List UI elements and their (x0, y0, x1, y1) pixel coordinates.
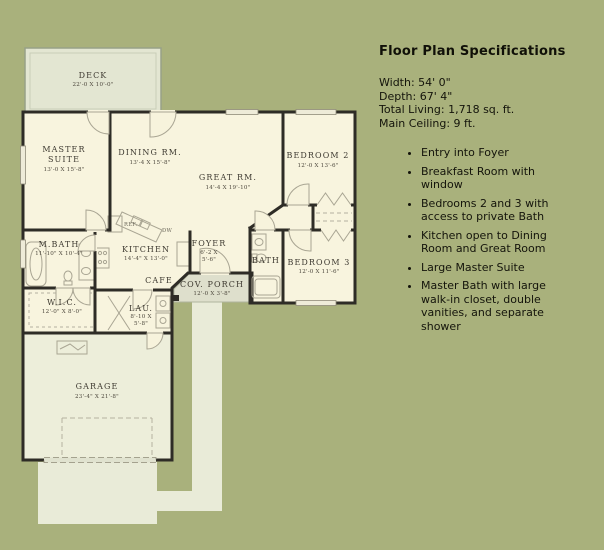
porch-label: COV. PORCH (180, 280, 244, 289)
feature-item: Entry into Foyer (421, 146, 563, 160)
mbath-label: M.BATH (39, 240, 80, 249)
spec-main-ceiling: Main Ceiling: 9 ft. (379, 117, 595, 131)
dining-label: DINING RM. (118, 148, 181, 157)
refrigerator-label: REF. (124, 222, 137, 228)
spec-width: Width: 54' 0" (379, 76, 595, 90)
feature-item: Kitchen open to Dining Room and Great Ro… (421, 229, 563, 256)
dishwasher-label: DW (162, 228, 172, 234)
dining-dims: 13'-4 X 15'-8" (129, 160, 170, 166)
window-greatroom (226, 110, 258, 115)
deck-outline (25, 48, 161, 114)
garage-label: GARAGE (76, 382, 119, 391)
wic-dims: 12'-0" X 8'-0" (42, 309, 82, 315)
spec-total-living: Total Living: 1,718 sq. ft. (379, 103, 595, 117)
bedroom3-dims: 12'-0 X 11'-6" (298, 269, 339, 275)
spec-depth: Depth: 67' 4" (379, 90, 595, 104)
feature-item: Breakfast Room with window (421, 165, 563, 192)
bedroom2-dims: 12'-0 X 13'-6" (297, 163, 338, 169)
master-label-2: SUITE (48, 155, 80, 164)
garage-door (44, 458, 156, 463)
laundry-dims-2: 5'-8" (134, 321, 148, 327)
feature-list: Entry into Foyer Breakfast Room with win… (379, 146, 595, 333)
deck-area (25, 48, 161, 114)
walkway-connector (155, 491, 222, 511)
wic-label: W.I.C. (47, 298, 77, 307)
specifications-panel: Floor Plan Specifications Width: 54' 0" … (379, 44, 595, 338)
feature-item: Large Master Suite (421, 261, 563, 275)
kitchen-dims: 14'-4" X 13'-0" (124, 256, 168, 262)
window-master (21, 146, 26, 184)
foyer-dims-1: 6'-2 X (200, 250, 218, 256)
window-mbath (21, 240, 26, 268)
deck-dims: 22'-0 X 10'-0" (72, 82, 113, 88)
bedroom2-label: BEDROOM 2 (287, 151, 350, 160)
specifications-title: Floor Plan Specifications (379, 44, 595, 59)
window-bedroom3 (296, 301, 336, 306)
laundry-dims-1: 8'-10 X (130, 314, 151, 320)
feature-item: Bedrooms 2 and 3 with access to private … (421, 197, 563, 224)
master-dims: 13'-0 X 15'-8" (43, 167, 84, 173)
master-label-1: MASTER (42, 145, 85, 154)
kitchen-label: KITCHEN (122, 245, 170, 254)
bath-label: BATH (252, 256, 280, 265)
garage-dims: 23'-4" X 21'-8" (75, 394, 119, 400)
bedroom3-label: BEDROOM 3 (288, 258, 351, 267)
greatroom-dims: 14'-4 X 19'-10" (206, 185, 251, 191)
porch-dims: 12'-0 X 3'-8" (193, 291, 231, 297)
cafe-label: CAFE (145, 276, 173, 285)
front-walkway (192, 298, 222, 511)
foyer-label: FOYER (192, 239, 227, 248)
deck-label: DECK (79, 71, 108, 80)
foyer-dims-2: 5'-6" (202, 257, 216, 263)
driveway (38, 462, 157, 524)
window-bedroom2 (296, 110, 336, 115)
mbath-dims: 11'-10" X 10'-4" (35, 251, 83, 257)
laundry-label: LAU. (129, 304, 153, 313)
greatroom-label: GREAT RM. (199, 173, 257, 182)
feature-item: Master Bath with large walk-in closet, d… (421, 279, 563, 333)
floor-plan-page: { "plan": { "deck": {"label": "DECK", "d… (0, 0, 604, 550)
porch-post (173, 295, 179, 301)
